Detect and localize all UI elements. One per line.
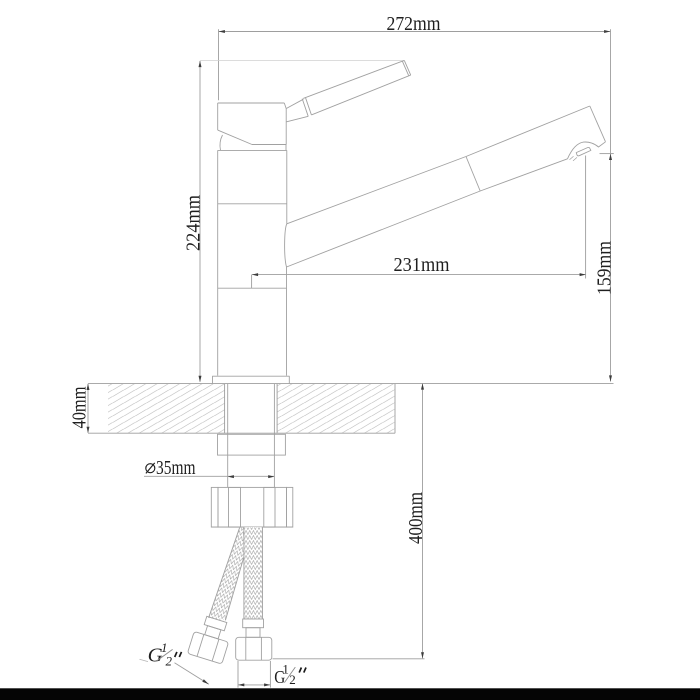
- svg-text:2: 2: [166, 653, 173, 668]
- svg-text:159mm: 159mm: [594, 241, 616, 295]
- svg-text:400mm: 400mm: [405, 492, 427, 544]
- svg-text:1: 1: [282, 662, 289, 677]
- svg-text:272mm: 272mm: [387, 13, 441, 35]
- svg-text:35mm: 35mm: [156, 457, 196, 479]
- svg-text:224mm: 224mm: [183, 195, 205, 251]
- svg-text:40mm: 40mm: [69, 386, 91, 428]
- svg-text:231mm: 231mm: [394, 254, 450, 276]
- svg-text:2: 2: [289, 672, 296, 687]
